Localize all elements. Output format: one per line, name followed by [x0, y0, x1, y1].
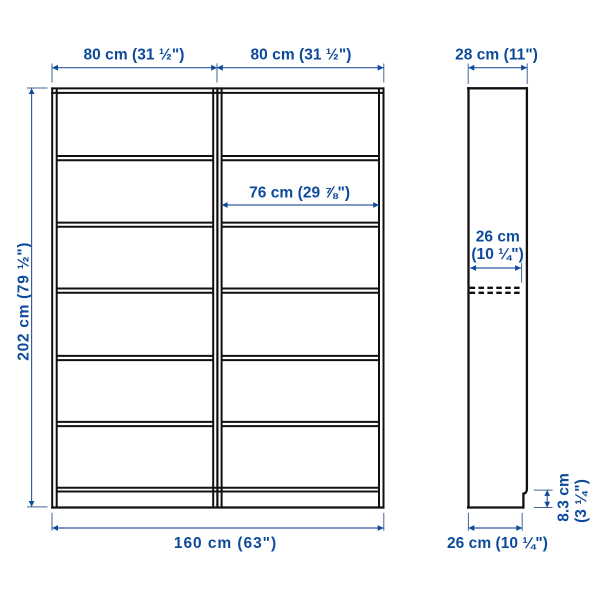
svg-text:160 cm (63"): 160 cm (63") [174, 535, 277, 552]
svg-text:26 cm (10 ¼"): 26 cm (10 ¼") [447, 535, 548, 552]
svg-text:26 cm: 26 cm [476, 229, 520, 246]
svg-text:28 cm (11"): 28 cm (11") [455, 47, 538, 64]
svg-text:80 cm (31 ½"): 80 cm (31 ½") [83, 47, 184, 64]
svg-text:(10 ¼"): (10 ¼") [471, 246, 524, 263]
svg-text:(3 ¼"): (3 ¼") [573, 479, 590, 523]
svg-text:202 cm (79 ½"): 202 cm (79 ½") [16, 242, 33, 361]
svg-text:8.3 cm: 8.3 cm [555, 473, 572, 522]
svg-text:80 cm (31 ½"): 80 cm (31 ½") [250, 47, 351, 64]
svg-text:76 cm (29 ⅞"): 76 cm (29 ⅞") [249, 185, 350, 202]
